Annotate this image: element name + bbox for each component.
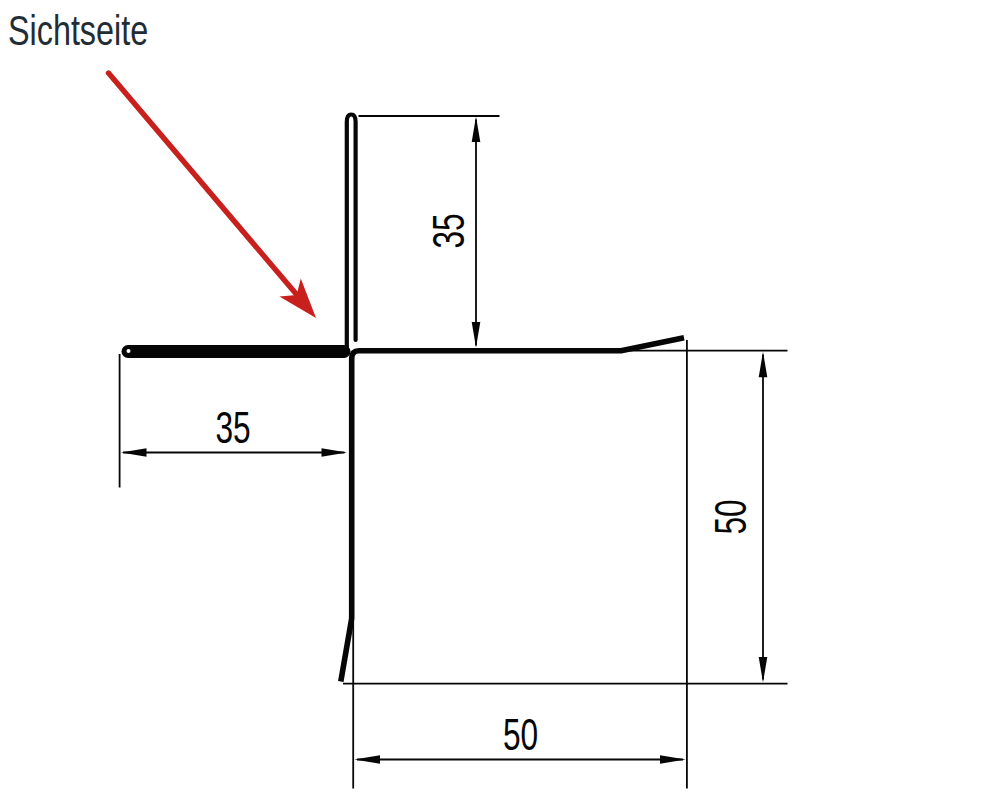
dimension-label-visible-face: 35 bbox=[215, 402, 250, 451]
arrow-left-icon bbox=[354, 755, 380, 764]
profile-right-and-bottom-leg bbox=[341, 338, 684, 682]
arrow-right-icon bbox=[322, 448, 348, 457]
hem-fold-detail bbox=[127, 349, 131, 353]
dimension-label-right-height: 50 bbox=[705, 499, 754, 534]
page-title: Sichtseite bbox=[8, 7, 148, 54]
profile-outline bbox=[127, 115, 685, 682]
dimension-label-bottom-width: 50 bbox=[503, 709, 538, 758]
arrow-left-icon bbox=[121, 448, 147, 457]
dimension-right-height: 50 bbox=[343, 351, 788, 684]
dimension-bottom-width: 50 bbox=[353, 340, 687, 789]
arrow-down-icon bbox=[472, 322, 481, 348]
profile-vertical-leg-hemmed bbox=[347, 115, 356, 354]
arrow-up-icon bbox=[472, 117, 481, 143]
technical-drawing-page: 35 35 50 50 bbox=[0, 0, 992, 792]
dimension-visible-face: 35 bbox=[120, 354, 347, 488]
arrow-right-icon bbox=[660, 755, 686, 764]
visible-side-pointer bbox=[109, 73, 317, 318]
red-arrow-shaft bbox=[109, 73, 298, 295]
arrow-up-icon bbox=[759, 352, 768, 378]
dimension-vertical-leg: 35 bbox=[359, 116, 500, 348]
arrow-down-icon bbox=[759, 657, 768, 683]
profile-cross-section-drawing: 35 35 50 50 bbox=[0, 0, 992, 792]
dimension-label-vertical-leg: 35 bbox=[423, 213, 472, 248]
